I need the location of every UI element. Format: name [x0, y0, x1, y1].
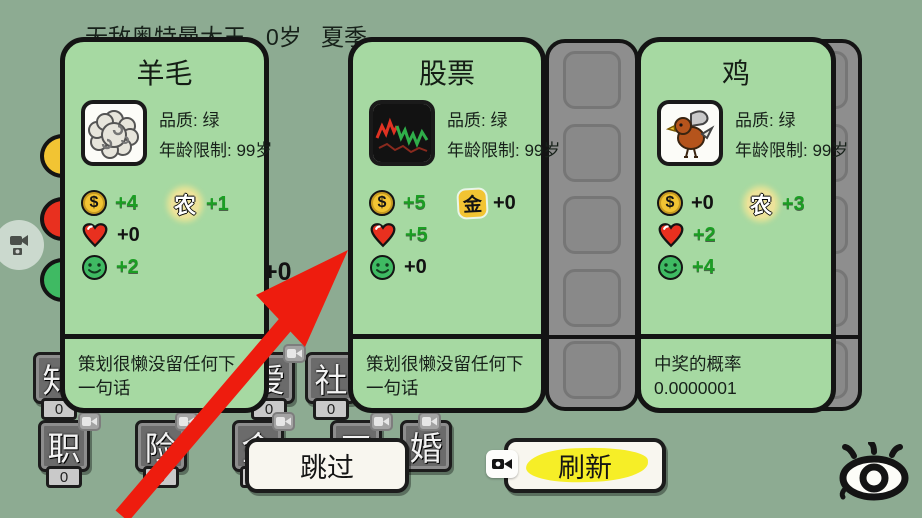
ad-video-icon[interactable] — [486, 450, 518, 478]
skip-button-label: 跳过 — [300, 446, 354, 485]
coin-icon: $ — [369, 190, 395, 216]
divider — [348, 334, 546, 339]
card-description: 策划很懒没留任何下一句话 — [353, 347, 541, 406]
mood-stat-value: +2 — [116, 256, 139, 279]
health-stat-value: +5 — [405, 224, 428, 247]
gold-icon: 金 — [458, 189, 486, 217]
card-age-limit: 年龄限制: 99岁 — [447, 136, 560, 161]
divider — [636, 334, 836, 339]
eye-toggle-button[interactable] — [836, 442, 916, 512]
stat-count-badge: 0 — [46, 466, 82, 488]
stat-count-badge: 0 — [313, 398, 349, 420]
card-quality: 品质: 绿 — [159, 106, 219, 131]
game-screen: 无敌奥特曼大王 0岁 夏季 0 +0 知 0 爱 0 社 0 职 0 险 0 金… — [0, 0, 922, 518]
card-back-slot — [563, 124, 621, 182]
divider — [545, 335, 639, 339]
card-description: 策划很懒没留任何下一句话 — [65, 347, 264, 406]
card-back-slot — [563, 341, 621, 399]
camera-icon — [6, 232, 32, 258]
card-quality: 品质: 绿 — [735, 106, 795, 131]
player-age: 0岁 — [266, 18, 302, 52]
money-stat-value: +4 — [115, 192, 138, 215]
face-down-card — [545, 39, 639, 411]
farm-stat-value: +3 — [782, 193, 805, 216]
farm-icon: 农 — [171, 190, 199, 218]
ad-video-icon[interactable] — [370, 412, 393, 431]
smiley-icon — [369, 254, 396, 281]
refresh-button-label: 刷新 — [558, 446, 612, 485]
card-quality: 品质: 绿 — [447, 106, 507, 131]
money-stat-value: +0 — [691, 192, 714, 215]
card-back-slot — [563, 269, 621, 327]
card-title: 羊毛 — [65, 52, 264, 92]
card-age-limit: 年龄限制: 99岁 — [159, 136, 272, 161]
wool-art-icon — [81, 100, 147, 166]
refresh-button[interactable]: 刷新 — [504, 438, 666, 493]
money-stat-value: +5 — [403, 192, 426, 215]
ad-video-icon[interactable] — [272, 412, 295, 431]
farm-stat-value: +1 — [206, 193, 229, 216]
coin-icon: $ — [81, 190, 107, 216]
eye-icon — [836, 442, 916, 512]
mood-stat-value: +4 — [692, 256, 715, 279]
card-wool[interactable]: 羊毛 品质: 绿 年龄限制: 99岁 $ +4 +0 — [60, 37, 269, 413]
ad-video-icon[interactable] — [418, 412, 441, 431]
stock-chart-art-icon — [369, 100, 435, 166]
mood-stat-value: +0 — [404, 256, 427, 279]
card-back-slot — [563, 196, 621, 254]
heart-icon — [369, 222, 397, 248]
health-stat-value: +0 — [117, 224, 140, 247]
record-share-button[interactable] — [0, 220, 44, 270]
coin-icon: $ — [657, 190, 683, 216]
skip-button[interactable]: 跳过 — [245, 438, 409, 493]
gold-stat-value: +0 — [493, 192, 516, 215]
chicken-art-icon — [657, 100, 723, 166]
card-back-slot — [563, 51, 621, 109]
farm-icon: 农 — [747, 190, 775, 218]
card-title: 股票 — [353, 52, 541, 92]
heart-icon — [81, 222, 109, 248]
card-stock[interactable]: 股票 品质: 绿 年龄限制: 99岁 $ +5 +5 +0 金 +0 — [348, 37, 546, 413]
smiley-icon — [81, 254, 108, 281]
health-stat-value: +2 — [693, 224, 716, 247]
ad-video-icon[interactable] — [78, 412, 101, 431]
smiley-icon — [657, 254, 684, 281]
ad-video-icon[interactable] — [175, 412, 198, 431]
card-chicken[interactable]: 鸡 品质: 绿 年龄限制: 99岁 $ +0 +2 +4 — [636, 37, 836, 413]
card-age-limit: 年龄限制: 99岁 — [735, 136, 848, 161]
card-description: 中奖的概率0.0000001 — [641, 347, 831, 406]
divider — [60, 334, 269, 339]
ad-video-icon[interactable] — [283, 344, 306, 363]
heart-icon — [657, 222, 685, 248]
card-title: 鸡 — [641, 52, 831, 92]
stat-count-badge: 0 — [143, 466, 179, 488]
